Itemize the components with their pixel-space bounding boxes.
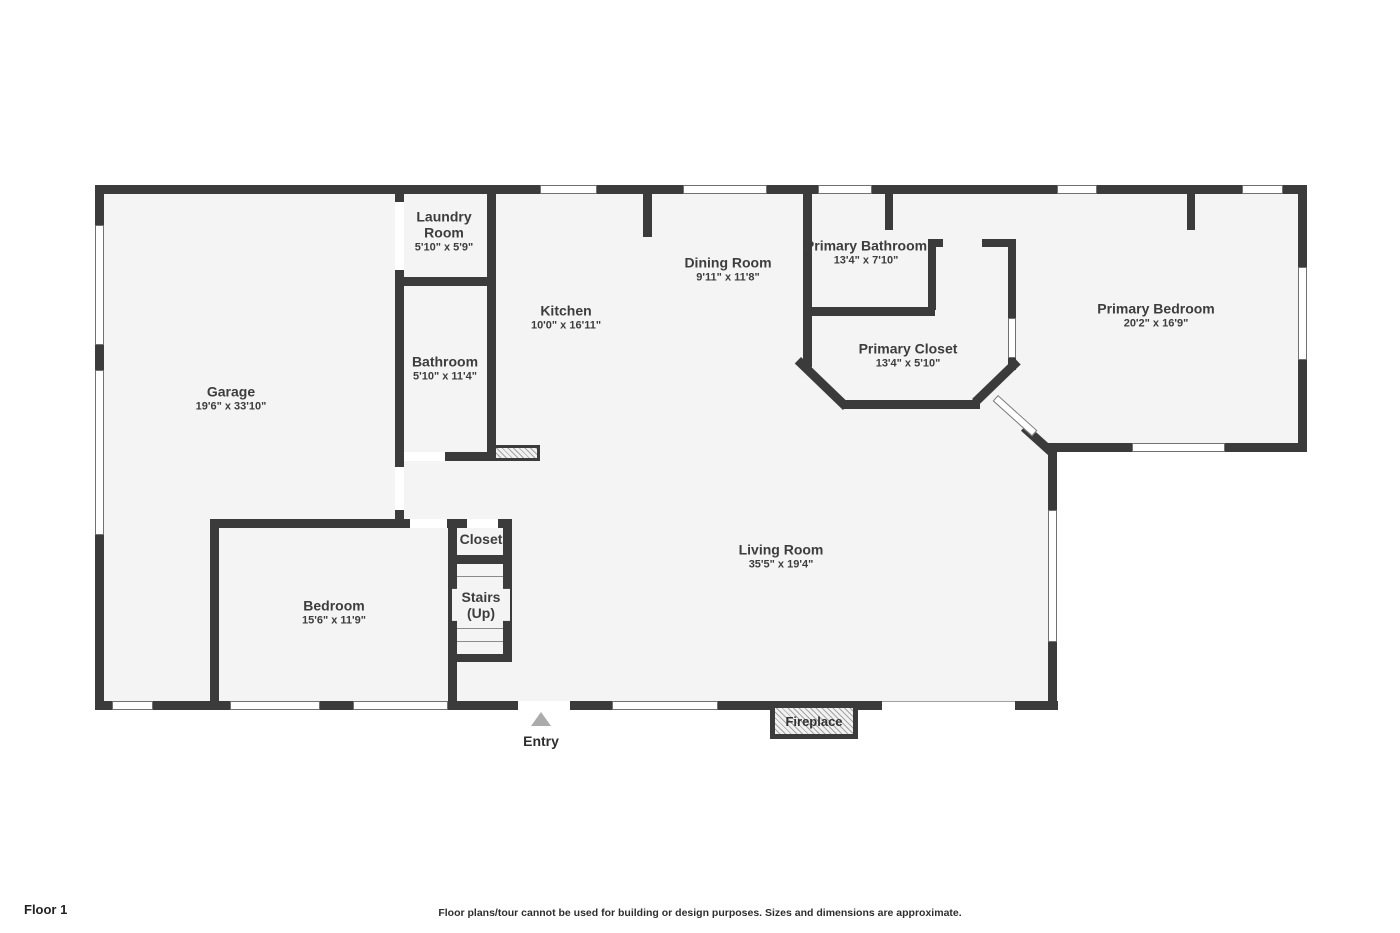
wall-segment <box>395 277 496 286</box>
window <box>1008 318 1016 358</box>
window <box>1048 510 1057 642</box>
window <box>1298 267 1307 360</box>
room-dims: 13'4" x 5'10" <box>859 358 958 370</box>
window <box>683 185 767 194</box>
entry-arrow-icon <box>531 712 551 726</box>
room-label-dining: Dining Room 9'11" x 11'8" <box>684 254 771 283</box>
room-dims: 13'4" x 7'10" <box>805 255 927 267</box>
stair-tread <box>457 628 503 629</box>
room-name: Closet <box>460 531 503 547</box>
window <box>1057 185 1097 194</box>
room-name: Bedroom <box>302 597 366 613</box>
room-name: Laundry Room <box>402 208 486 240</box>
door-opening-bedroom <box>410 519 447 528</box>
room-label-closet: Closet <box>460 531 503 547</box>
room-dims: 5'10" x 11'4" <box>412 371 478 383</box>
entry-label: Entry <box>523 733 559 749</box>
stair-tread <box>457 576 503 577</box>
wall-segment <box>1008 246 1016 320</box>
room-dims: 19'6" x 33'10" <box>196 401 267 413</box>
room-label-primary-bathroom: Primary Bathroom 13'4" x 7'10" <box>805 237 927 266</box>
wall-segment <box>843 400 980 409</box>
wall-segment <box>448 654 512 662</box>
kitchen-counter <box>493 445 540 461</box>
wall-segment <box>643 185 652 237</box>
room-dims: 9'11" x 11'8" <box>684 272 771 284</box>
window <box>540 185 597 194</box>
room-label-living: Living Room 35'5" x 19'4" <box>739 541 824 570</box>
wall-segment <box>803 185 812 367</box>
floor-plan-page: Fireplace Entry Laundry Room 5'10" x 5'9… <box>0 0 1400 933</box>
wall-segment <box>982 239 1016 247</box>
wall-segment <box>928 239 943 247</box>
wall-segment <box>928 239 936 310</box>
room-label-stairs: Stairs (Up) <box>452 589 510 621</box>
wall-segment <box>445 452 496 461</box>
room-name: Dining Room <box>684 254 771 270</box>
room-name: Kitchen <box>531 302 601 318</box>
room-dims: 15'6" x 11'9" <box>302 615 366 627</box>
room-dims: 20'2" x 16'9" <box>1097 318 1214 330</box>
fireplace-label: Fireplace <box>785 714 842 729</box>
room-name: Stairs (Up) <box>452 589 510 621</box>
room-name: Living Room <box>739 541 824 557</box>
wall-segment <box>448 555 512 564</box>
wall-segment <box>395 270 404 467</box>
room-name: Primary Bathroom <box>805 237 927 253</box>
window <box>353 701 448 710</box>
room-label-primary-bedroom: Primary Bedroom 20'2" x 16'9" <box>1097 300 1214 329</box>
stair-tread <box>457 641 503 642</box>
disclaimer-text: Floor plans/tour cannot be used for buil… <box>0 907 1400 919</box>
door-opening-bathroom <box>404 452 445 461</box>
room-label-kitchen: Kitchen 10'0" x 16'11" <box>531 302 601 331</box>
door-opening-closet <box>467 519 498 528</box>
door-opening-living <box>882 701 1015 710</box>
wall-segment <box>1187 185 1195 230</box>
room-dims: 35'5" x 19'4" <box>739 559 824 571</box>
wall-segment <box>803 307 935 316</box>
window <box>95 370 104 535</box>
room-label-laundry: Laundry Room 5'10" x 5'9" <box>402 208 486 253</box>
wall-segment <box>448 519 467 528</box>
room-label-garage: Garage 19'6" x 33'10" <box>196 383 267 412</box>
door-opening-entry <box>518 701 570 710</box>
door-opening-hall <box>395 467 404 510</box>
wall-segment <box>487 185 496 460</box>
room-name: Garage <box>196 383 267 399</box>
room-dims: 10'0" x 16'11" <box>531 320 601 332</box>
window <box>95 225 104 345</box>
window <box>1132 443 1225 452</box>
room-name: Primary Closet <box>859 340 958 356</box>
room-label-bathroom: Bathroom 5'10" x 11'4" <box>412 353 478 382</box>
window <box>612 701 718 710</box>
room-name: Primary Bedroom <box>1097 300 1214 316</box>
wall-segment <box>210 519 410 528</box>
room-label-bedroom: Bedroom 15'6" x 11'9" <box>302 597 366 626</box>
room-name: Bathroom <box>412 353 478 369</box>
window <box>1242 185 1283 194</box>
room-dims: 5'10" x 5'9" <box>402 242 486 254</box>
window <box>230 701 320 710</box>
room-label-primary-closet: Primary Closet 13'4" x 5'10" <box>859 340 958 369</box>
fireplace: Fireplace <box>770 703 858 739</box>
window <box>112 701 153 710</box>
wall-segment <box>210 519 219 710</box>
wall-segment <box>885 185 893 230</box>
window <box>818 185 872 194</box>
wall-segment <box>395 185 404 202</box>
